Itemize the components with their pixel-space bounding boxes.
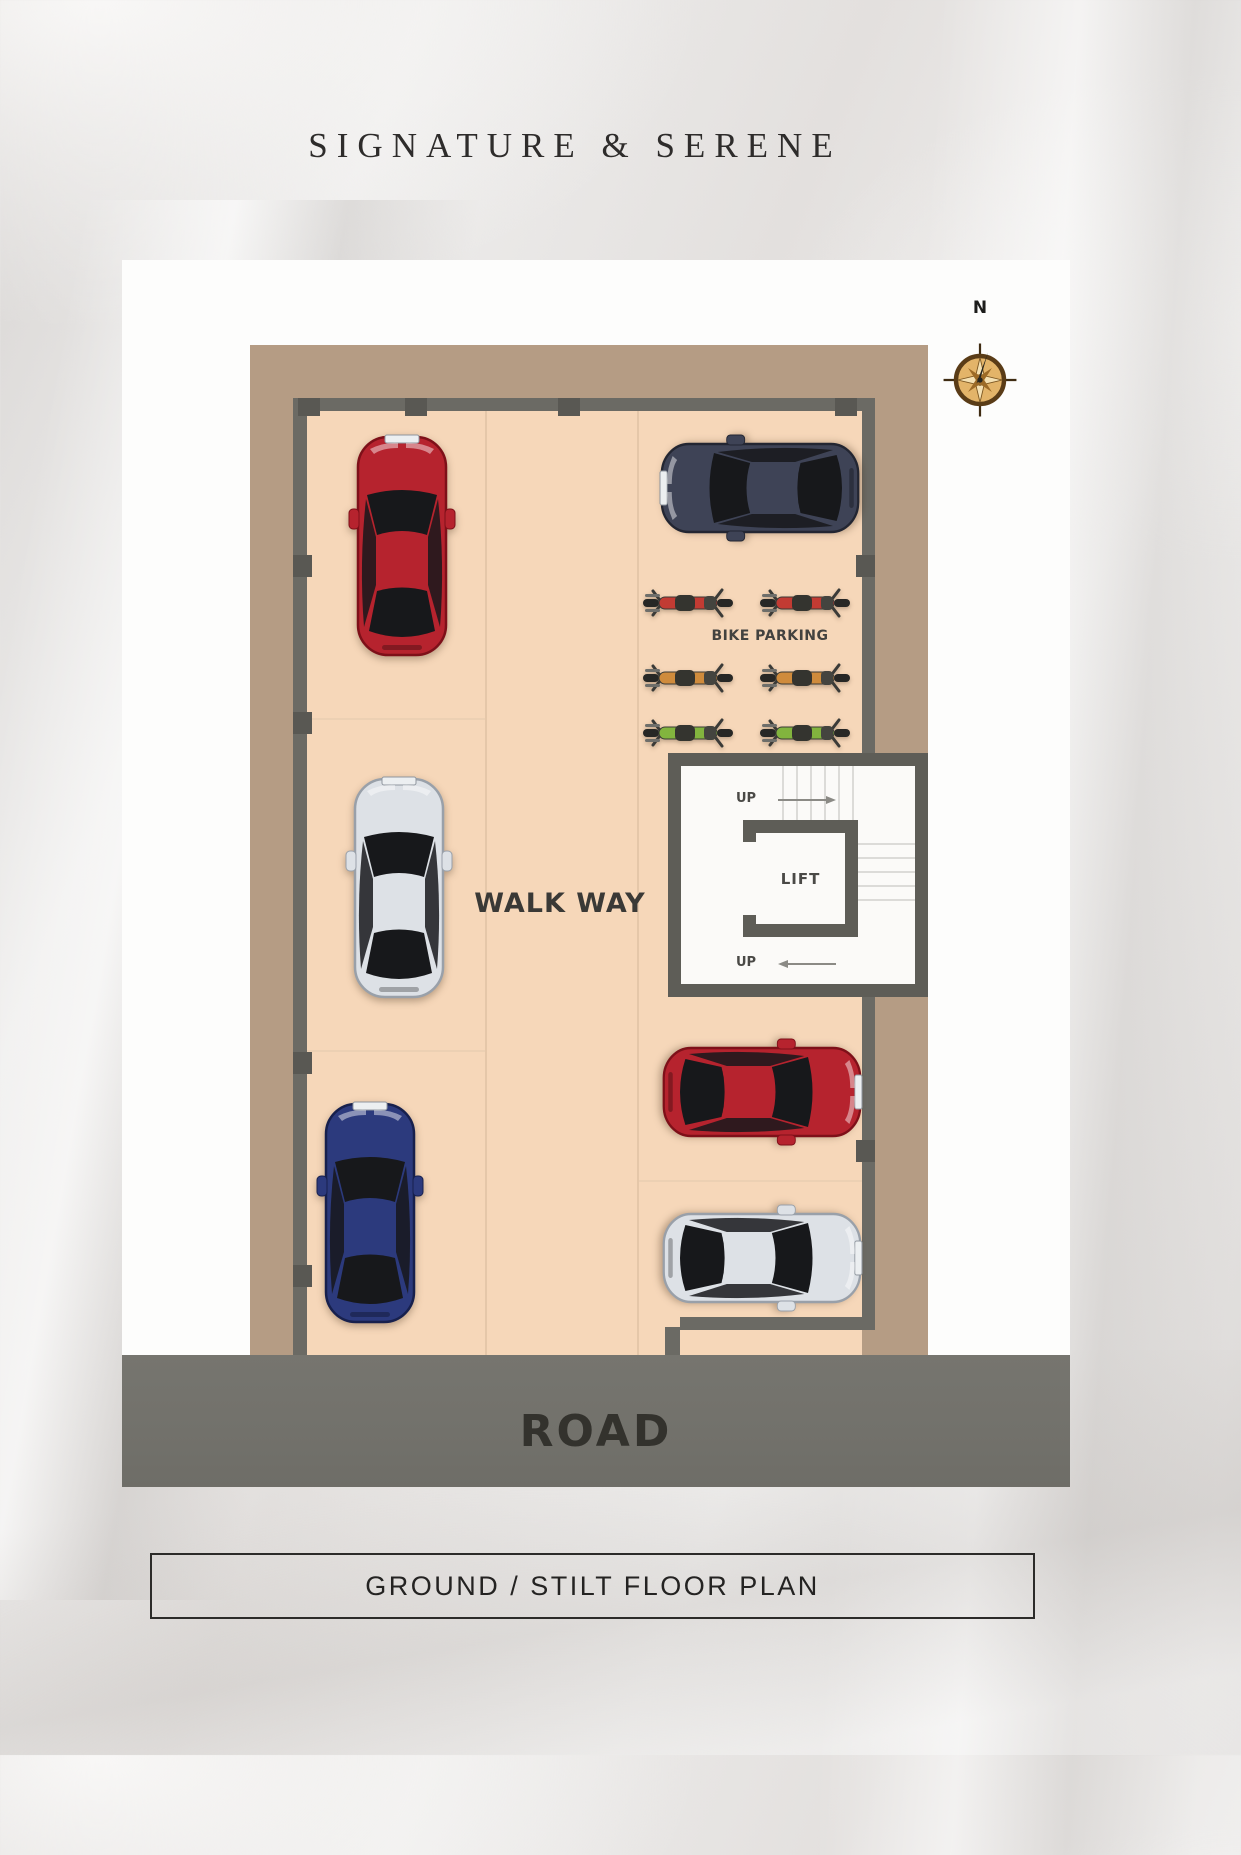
page-title: SIGNATURE & SERENE xyxy=(0,122,1150,170)
floor-plan-caption-box: GROUND / STILT FLOOR PLAN xyxy=(150,1553,1035,1619)
floor-plan-card: ROAD LIFT xyxy=(122,260,1070,1487)
car-red-right xyxy=(662,1042,862,1142)
car-navy-right xyxy=(660,438,860,538)
car-white-left xyxy=(349,777,449,999)
car-red-left xyxy=(352,435,452,657)
car-layer xyxy=(122,260,1070,1487)
car-blue-left xyxy=(320,1102,420,1324)
floor-plan-caption: GROUND / STILT FLOOR PLAN xyxy=(365,1571,820,1602)
car-white-right xyxy=(662,1208,862,1308)
